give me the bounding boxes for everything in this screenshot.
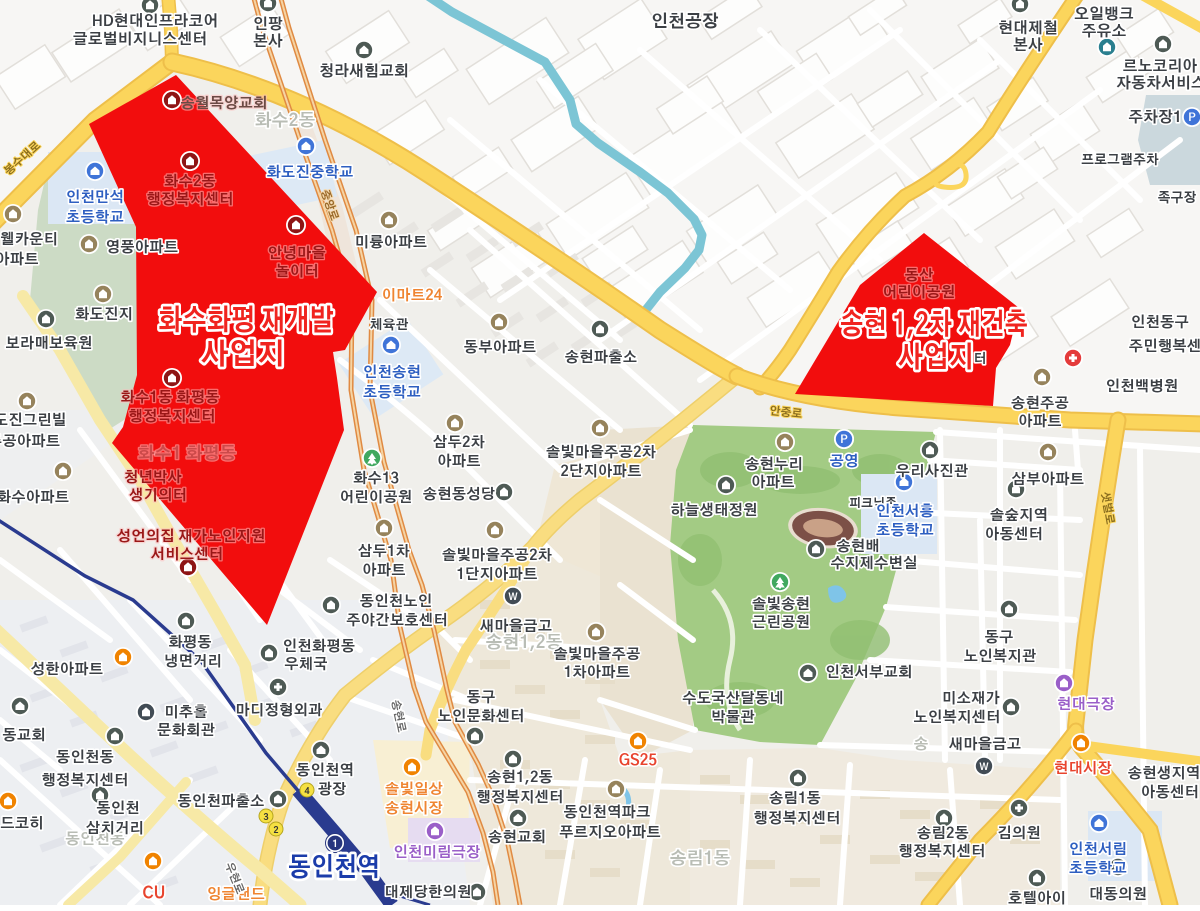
svg-text:새마을금고: 새마을금고 (949, 736, 1022, 752)
svg-text:송현1,2동: 송현1,2동 (485, 634, 562, 652)
svg-text:아파트: 아파트 (362, 562, 406, 578)
svg-text:송현누리: 송현누리 (745, 456, 803, 472)
svg-text:박물관: 박물관 (711, 709, 755, 725)
svg-text:본사: 본사 (1013, 37, 1043, 54)
svg-text:현대시장: 현대시장 (1054, 760, 1113, 776)
svg-text:미소재가: 미소재가 (942, 690, 1001, 706)
svg-text:생기의터: 생기의터 (129, 487, 187, 503)
svg-text:노인복지관: 노인복지관 (964, 648, 1037, 664)
svg-text:주차장1: 주차장1 (1128, 108, 1182, 126)
svg-text:동구: 동구 (984, 630, 1014, 645)
svg-text:화수2동: 화수2동 (164, 173, 217, 189)
svg-text:초등학교: 초등학교 (363, 384, 422, 400)
svg-text:아파트: 아파트 (1018, 413, 1062, 429)
svg-text:대동의원: 대동의원 (1089, 886, 1147, 902)
svg-text:동교회: 동교회 (2, 727, 46, 743)
svg-text:송현동성당: 송현동성당 (423, 485, 496, 502)
svg-text:2단지아파트: 2단지아파트 (560, 463, 642, 479)
svg-text:주민행복센: 주민행복센 (1129, 338, 1200, 354)
svg-text:GS25: GS25 (619, 753, 658, 769)
svg-text:주유소: 주유소 (1082, 24, 1127, 40)
svg-text:인천만석: 인천만석 (66, 188, 124, 205)
svg-text:근린공원: 근린공원 (752, 614, 810, 630)
svg-text:솔빛마을주공2차: 솔빛마을주공2차 (546, 443, 657, 460)
svg-text:동인천역파크: 동인천역파크 (563, 803, 651, 820)
svg-text:노인복지센터: 노인복지센터 (913, 709, 1000, 725)
svg-text:동인천역: 동인천역 (296, 761, 354, 778)
svg-text:글로벌비지니스센터: 글로벌비지니스센터 (73, 31, 207, 48)
svg-text:이마트24: 이마트24 (382, 287, 443, 303)
svg-text:화도진중학교: 화도진중학교 (266, 164, 354, 180)
svg-text:르노코리아: 르노코리아 (1123, 58, 1198, 75)
svg-text:화평동: 화평동 (168, 634, 212, 650)
svg-text:보라매보육원: 보라매보육원 (5, 335, 92, 351)
svg-text:청년박사: 청년박사 (124, 468, 183, 485)
svg-text:삼치거리: 삼치거리 (86, 819, 144, 836)
svg-text:터: 터 (974, 351, 987, 366)
svg-text:초등학교: 초등학교 (876, 522, 935, 538)
svg-text:자동차서비스: 자동차서비스 (1116, 74, 1200, 92)
svg-text:솔숲지역: 솔숲지역 (990, 507, 1048, 523)
svg-text:우체국: 우체국 (284, 656, 328, 672)
svg-text:삼부아파트: 삼부아파트 (1012, 470, 1085, 487)
svg-text:송림1동: 송림1동 (670, 849, 731, 868)
svg-text:서비스센터: 서비스센터 (151, 546, 224, 562)
svg-text:송현생지역: 송현생지역 (1128, 765, 1200, 781)
svg-text:주야간보호센터: 주야간보호센터 (346, 611, 448, 628)
svg-text:미추홀: 미추홀 (164, 704, 208, 720)
svg-text:HD현대인프라코어: HD현대인프라코어 (92, 12, 219, 30)
svg-text:노인문화센터: 노인문화센터 (437, 708, 524, 724)
svg-text:마디정형외과: 마디정형외과 (235, 701, 323, 718)
svg-text:동산: 동산 (904, 266, 934, 283)
svg-text:송월목양교회: 송월목양교회 (180, 95, 267, 111)
svg-text:행정복지센터: 행정복지센터 (476, 789, 563, 805)
svg-text:광장: 광장 (317, 781, 347, 797)
svg-text:아파트: 아파트 (0, 251, 39, 267)
svg-text:사업지: 사업지 (898, 342, 974, 373)
svg-text:인팡: 인팡 (253, 16, 283, 33)
svg-text:인천화평동: 인천화평동 (283, 637, 356, 654)
svg-text:동인천동: 동인천동 (56, 748, 115, 765)
svg-text:도진그린빌: 도진그린빌 (0, 412, 66, 428)
svg-text:영풍아파트: 영풍아파트 (106, 239, 179, 255)
svg-text:인천미림극장: 인천미림극장 (393, 843, 481, 860)
svg-text:프로그램주차: 프로그램주차 (1081, 152, 1159, 167)
svg-text:드코히: 드코히 (0, 815, 44, 831)
svg-text:송림2동: 송림2동 (917, 825, 970, 841)
svg-text:성언의집 재가노인지원: 성언의집 재가노인지원 (117, 528, 266, 544)
svg-text:행정복지센터: 행정복지센터 (41, 772, 128, 788)
svg-text:화수아파트: 화수아파트 (0, 489, 70, 505)
svg-text:솔빛송현: 솔빛송현 (752, 596, 810, 612)
svg-text:수지제수변실: 수지제수변실 (830, 554, 917, 571)
svg-text:화도진지: 화도진지 (75, 306, 133, 322)
svg-text:놀이터: 놀이터 (275, 263, 319, 279)
svg-text:아동센터: 아동센터 (1141, 784, 1199, 800)
svg-text:하늘생태정원: 하늘생태정원 (670, 501, 757, 518)
svg-text:새마을금고: 새마을금고 (480, 618, 553, 634)
svg-text:송현시장: 송현시장 (385, 800, 444, 816)
svg-text:화수화평 재개발: 화수화평 재개발 (158, 305, 334, 336)
svg-text:화수1동 화평동: 화수1동 화평동 (120, 389, 220, 405)
svg-text:인천백병원: 인천백병원 (1106, 377, 1179, 394)
svg-text:수도국산달동네: 수도국산달동네 (682, 689, 784, 706)
svg-text:문화회관: 문화회관 (157, 722, 216, 738)
svg-text:푸르지오아파트: 푸르지오아파트 (559, 824, 661, 840)
svg-text:체육관: 체육관 (370, 317, 409, 332)
svg-text:송현교회: 송현교회 (488, 829, 546, 845)
svg-text:송현1,2동: 송현1,2동 (487, 769, 554, 785)
svg-text:송현 1,2차 재건축: 송현 1,2차 재건축 (840, 309, 1028, 340)
svg-text:족구장: 족구장 (1158, 190, 1197, 205)
svg-text:삼두1차: 삼두1차 (358, 542, 411, 559)
svg-text:솔빛마을주공: 솔빛마을주공 (553, 646, 641, 662)
svg-text:공영: 공영 (829, 453, 858, 469)
svg-text:성한아파트: 성한아파트 (31, 661, 104, 677)
svg-text:4: 4 (304, 787, 310, 796)
svg-text:화수1 화평동: 화수1 화평동 (138, 444, 237, 463)
svg-text:본사: 본사 (253, 33, 283, 50)
svg-text:초등학교: 초등학교 (1069, 860, 1128, 876)
svg-text:냉면거리: 냉면거리 (164, 652, 222, 669)
svg-text:동인천역: 동인천역 (288, 854, 380, 882)
svg-text:동구: 동구 (466, 690, 496, 705)
svg-text:동인천노인: 동인천노인 (360, 592, 433, 609)
svg-text:인천송현: 인천송현 (363, 363, 421, 380)
svg-text:사업지: 사업지 (201, 339, 285, 370)
svg-text:송림1동: 송림1동 (769, 790, 822, 806)
svg-text:1차아파트: 1차아파트 (564, 663, 631, 680)
svg-text:행정복지센터: 행정복지센터 (128, 408, 215, 424)
svg-text:인천서림: 인천서림 (1069, 840, 1127, 857)
svg-text:아동센터: 아동센터 (985, 526, 1043, 542)
svg-text:솔빛마을주공2차: 솔빛마을주공2차 (442, 546, 553, 563)
svg-text:행정복지센터: 행정복지센터 (898, 843, 985, 859)
svg-text:동인천: 동인천 (96, 799, 140, 816)
svg-text:안녕마을: 안녕마을 (268, 245, 327, 261)
svg-text:행정복지센터: 행정복지센터 (146, 191, 233, 207)
svg-text:초등학교: 초등학교 (66, 209, 125, 225)
svg-text:어린이공원: 어린이공원 (883, 283, 956, 300)
svg-text:동부아파트: 동부아파트 (464, 339, 537, 355)
svg-text:미륭아파트: 미륭아파트 (355, 234, 428, 250)
svg-text:송현배: 송현배 (836, 538, 880, 554)
svg-text:솔빛일상: 솔빛일상 (385, 781, 444, 797)
svg-text:화수2동: 화수2동 (255, 111, 316, 130)
svg-text:대제당한의원: 대제당한의원 (384, 883, 471, 900)
svg-text:우리사진관: 우리사진관 (896, 463, 969, 479)
svg-text:주공아파트: 주공아파트 (0, 433, 61, 449)
svg-text:P: P (840, 434, 848, 446)
svg-text:인천서흥: 인천서흥 (876, 502, 935, 519)
svg-text:CU: CU (143, 886, 166, 902)
svg-text:삼두2차: 삼두2차 (433, 433, 486, 450)
svg-text:화수13: 화수13 (353, 470, 400, 486)
svg-text:행정복지센터: 행정복지센터 (753, 810, 840, 826)
svg-text:어린이공원: 어린이공원 (340, 488, 413, 505)
svg-text:현대제철: 현대제철 (998, 20, 1058, 37)
svg-text:인천동구: 인천동구 (1131, 313, 1190, 330)
svg-text:1단지아파트: 1단지아파트 (456, 566, 538, 582)
svg-text:현대극장: 현대극장 (1057, 696, 1116, 712)
svg-text:오일뱅크: 오일뱅크 (1074, 6, 1134, 23)
svg-text:아파트: 아파트 (437, 453, 481, 469)
svg-text:김의원: 김의원 (997, 825, 1041, 841)
svg-text:아파트: 아파트 (751, 474, 795, 490)
svg-text:송현파출소: 송현파출소 (565, 349, 638, 365)
svg-text:송현주공: 송현주공 (1011, 395, 1070, 411)
svg-text:3: 3 (263, 813, 268, 822)
svg-text:인천공장: 인천공장 (651, 12, 719, 31)
svg-text:동인천파출소: 동인천파출소 (177, 792, 265, 809)
svg-text:호텔아이: 호텔아이 (1008, 890, 1066, 905)
svg-text:W: W (508, 592, 518, 603)
svg-text:W: W (979, 762, 989, 773)
svg-text:송: 송 (914, 737, 929, 753)
svg-text:P: P (1188, 112, 1196, 124)
svg-text:인천서부교회: 인천서부교회 (825, 663, 912, 680)
svg-text:웰카운티: 웰카운티 (0, 231, 58, 247)
svg-text:1: 1 (332, 839, 338, 850)
svg-text:2: 2 (273, 826, 278, 835)
svg-text:청라새힘교회: 청라새힘교회 (319, 63, 409, 80)
